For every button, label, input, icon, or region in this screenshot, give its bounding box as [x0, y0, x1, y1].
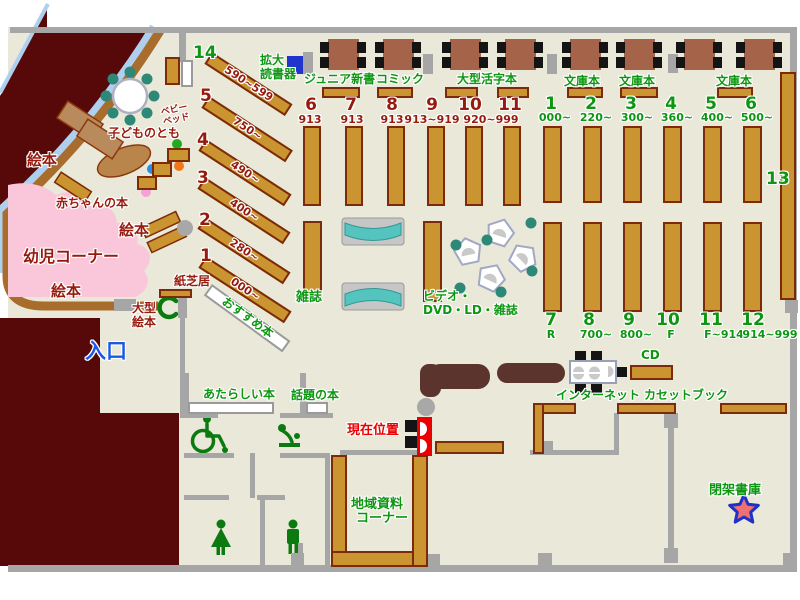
stack-range: 220~	[580, 112, 612, 124]
junior-shinsho-label: ジュニア新書	[304, 73, 375, 86]
bunko-label: 文庫本	[564, 75, 600, 88]
shelf-number: 1	[200, 247, 212, 266]
step-shelf	[137, 176, 157, 190]
baby-bed	[181, 60, 193, 87]
internet-station	[570, 351, 627, 393]
star-icon	[730, 495, 759, 522]
pillar	[664, 413, 678, 428]
video-label-line1: ビデオ・	[423, 290, 471, 303]
column	[417, 398, 435, 416]
shelf-number: 4	[197, 131, 209, 150]
ehon-bottom-label: 絵本	[51, 283, 81, 300]
service-counter	[420, 363, 565, 397]
stack-range: 913	[381, 114, 404, 126]
stack-range: 700~	[580, 329, 612, 341]
right-shelf	[720, 403, 787, 414]
wall-room	[668, 428, 674, 553]
large-ehon-label: 大型絵本	[132, 276, 156, 355]
wall-stub	[179, 33, 186, 62]
stack	[543, 126, 562, 203]
stack	[583, 222, 602, 312]
stack-range: 000~	[539, 112, 571, 124]
large-ehon-line2: 絵本	[132, 316, 156, 329]
pillar	[178, 297, 187, 318]
shelf-13-label: 13	[766, 170, 790, 189]
wall-toilet	[280, 453, 330, 458]
stack-range: 913~919	[404, 114, 459, 126]
magazines-label: 雑誌	[296, 291, 322, 305]
cassette-shelf	[617, 403, 676, 414]
reading-table	[744, 39, 775, 70]
new-books-label: あたらしい本	[203, 388, 275, 401]
local-docs-line2: コーナー	[356, 512, 408, 526]
local-docs-shelf	[412, 455, 428, 567]
reading-table	[450, 39, 481, 70]
stack	[623, 222, 642, 312]
wall-toilet	[260, 500, 265, 566]
pillar	[543, 441, 553, 455]
baby-bed-shelf	[165, 57, 180, 85]
pillar	[664, 548, 678, 563]
stack-number: 6	[305, 96, 317, 115]
stack-range: 913	[341, 114, 364, 126]
video-carrels	[451, 216, 543, 298]
pillar	[303, 52, 313, 74]
stack-range: 400~	[701, 112, 733, 124]
reading-table	[505, 39, 536, 70]
cd-label: CD	[641, 349, 660, 362]
reading-table	[570, 39, 601, 70]
reading-table	[328, 39, 359, 70]
wall-toilet	[184, 495, 229, 500]
shelf-number: 5	[200, 87, 212, 106]
pillar	[668, 54, 678, 73]
large-ehon-line1: 大型	[132, 302, 156, 315]
phone-icon	[160, 298, 176, 317]
wall-room	[614, 413, 619, 455]
pillar	[785, 300, 798, 313]
magnifier-line2: 読書器	[260, 68, 296, 81]
bench-top	[342, 218, 404, 245]
stack-range: R	[547, 329, 555, 341]
wheelchair-icon	[193, 415, 229, 453]
reading-table	[624, 39, 655, 70]
stack-range: 360~	[661, 112, 693, 124]
exterior-block	[0, 413, 179, 566]
bunko-label: 文庫本	[619, 75, 655, 88]
stack	[345, 126, 363, 206]
closed-stacks-label: 閉架書庫	[709, 484, 761, 498]
column	[177, 220, 193, 236]
stack	[543, 222, 562, 312]
pillar	[423, 54, 433, 74]
stack-number: 10	[656, 311, 680, 330]
topic-books-label: 話題の本	[291, 389, 339, 402]
stack-range: F~914	[704, 329, 744, 341]
bench-bottom	[342, 283, 404, 310]
baby-change-icon	[278, 424, 300, 447]
reading-table	[684, 39, 715, 70]
stack-number: 9	[426, 96, 438, 115]
reading-table	[383, 39, 414, 70]
stack	[743, 222, 762, 312]
video-label-line2: DVD・LD・雑誌	[423, 304, 518, 317]
topic-books-shelf	[306, 402, 328, 414]
magnifier-label: 拡大読書器	[260, 28, 296, 107]
cassette-label: カセットブック	[644, 389, 728, 402]
pillar	[547, 54, 557, 74]
baby-books-label: 赤ちゃんの本	[56, 197, 128, 210]
stack-range: 920~999	[463, 114, 518, 126]
new-books-shelf	[188, 402, 274, 414]
step-shelf	[152, 162, 172, 177]
stack-number: 8	[583, 311, 595, 330]
shelf-number: 2	[199, 211, 211, 230]
stack	[465, 126, 483, 206]
stack-number: 11	[699, 311, 723, 330]
stack	[583, 126, 602, 203]
wall-toilet	[325, 455, 330, 566]
pillar	[291, 553, 304, 566]
stack-number: 11	[498, 96, 522, 115]
internet-label: インターネット	[556, 389, 640, 402]
stack-number: 12	[741, 311, 765, 330]
pillar	[428, 554, 440, 566]
comic-label: コミック	[376, 73, 424, 86]
stack-number: 7	[345, 96, 357, 115]
stack	[623, 126, 642, 203]
stack-range: 914~999	[742, 329, 797, 341]
stack	[703, 126, 722, 203]
stack-range: F	[667, 329, 675, 341]
stack-number: 10	[458, 96, 482, 115]
stack-range: 300~	[621, 112, 653, 124]
shelf-number: 3	[197, 169, 209, 188]
step-shelf	[167, 148, 190, 162]
cd-shelf	[630, 365, 673, 380]
woman-icon	[211, 520, 231, 556]
stool-orange	[174, 161, 184, 171]
kamishibai-label: 紙芝居	[174, 275, 210, 288]
wall-toilet	[184, 453, 234, 458]
library-floor-map: 590~599 750~ 490~ 400~ 280~ 000~ おすすめ本 1…	[0, 0, 800, 600]
stack	[743, 126, 762, 203]
stack-number: 8	[386, 96, 398, 115]
stack-number: 7	[545, 311, 557, 330]
wall-top	[10, 27, 797, 33]
large-print-label: 大型活字本	[457, 73, 517, 86]
stack	[427, 126, 445, 206]
shelf-number: 14	[193, 44, 217, 63]
stack	[663, 222, 682, 312]
ehon-left-label: 絵本	[27, 152, 57, 169]
magnifier-line1: 拡大	[260, 54, 296, 67]
stack	[387, 126, 405, 206]
stack-range: 913	[299, 114, 322, 126]
pillar	[783, 553, 797, 566]
bunko-label: 文庫本	[716, 75, 752, 88]
stack	[303, 126, 321, 206]
wall-localdocs	[340, 450, 417, 455]
stack-number: 9	[623, 311, 635, 330]
current-position-label: 現在位置	[347, 424, 399, 438]
kamishibai-shelf	[159, 289, 192, 298]
pillar	[538, 553, 552, 566]
infant-corner-label: 幼児コーナー	[23, 248, 119, 266]
ehon-mid-label: 絵本	[119, 222, 149, 239]
marker-side-shelf	[435, 441, 504, 454]
stack-range: 800~	[620, 329, 652, 341]
stack-range: 500~	[741, 112, 773, 124]
stack	[663, 126, 682, 203]
story-table	[101, 67, 160, 126]
wall-toilet	[250, 453, 255, 498]
stack	[503, 126, 521, 206]
l-shelf	[533, 403, 544, 454]
entrance-label: 入口	[85, 340, 127, 363]
stack	[703, 222, 722, 312]
